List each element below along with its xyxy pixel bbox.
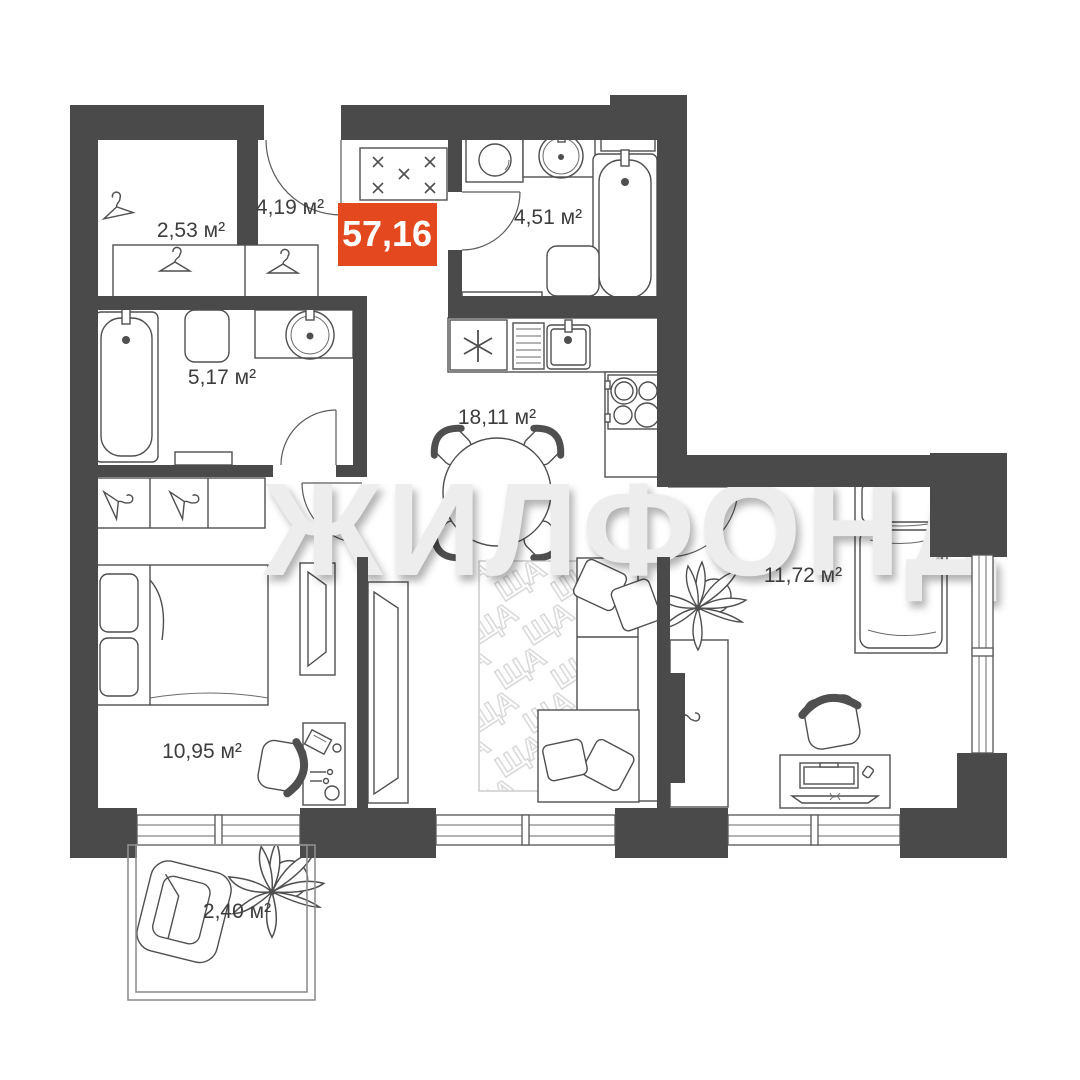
toilet-top (547, 246, 599, 296)
toilet-left (185, 310, 229, 362)
room-label-bedroom-right: 11,72 м² (764, 564, 842, 587)
room-label-balcony: 2,40 м² (203, 900, 271, 923)
bedroom-chair (256, 737, 308, 796)
kitchen-sink (547, 320, 590, 369)
window-bedroom-right-side (972, 555, 993, 753)
window-living (436, 815, 615, 845)
bathroom-top-door (462, 192, 520, 250)
hall-cabinet (360, 148, 447, 200)
wing-desk (780, 755, 890, 808)
room-label-bathroom-top: 4,51 м² (514, 206, 582, 229)
floor-plan-page: ЩАЩАЩАЩАЩАЩАЩАЩАЩАЩАЩАЩАЩАЩАЩАЩАЩАЩА (0, 0, 1080, 1080)
shelf-unit (368, 582, 408, 803)
double-bed (92, 565, 268, 705)
vanity-sink (255, 306, 353, 359)
wing-chair (800, 693, 864, 752)
bath-mat-left (175, 452, 232, 465)
kitchen-counter (448, 318, 663, 372)
bedroom-wardrobe (92, 478, 265, 528)
window-bedroom-right-bottom (728, 815, 900, 845)
room-label-bedroom-left: 10,95 м² (162, 740, 242, 763)
floor-plan: ЩАЩАЩАЩАЩАЩАЩАЩАЩАЩАЩАЩАЩАЩАЩАЩАЩАЩА (0, 0, 1080, 1080)
total-area-value: 57,16 (342, 213, 432, 254)
room-label-kitchen-living: 18,11 м² (458, 406, 536, 429)
total-area-badge: 57,16 (338, 203, 437, 266)
hanger-icon (99, 189, 133, 218)
bedroom-desk (303, 723, 345, 805)
bathtub-left (95, 308, 158, 462)
room-label-wardrobe: 2,53 м² (157, 219, 225, 242)
hall-closet (113, 245, 318, 298)
room-label-hallway: 4,19 м² (256, 196, 324, 219)
bathtub-top (593, 150, 657, 304)
window-bedroom-left (137, 815, 300, 845)
room-label-bathroom-left: 5,17 м² (188, 366, 256, 389)
